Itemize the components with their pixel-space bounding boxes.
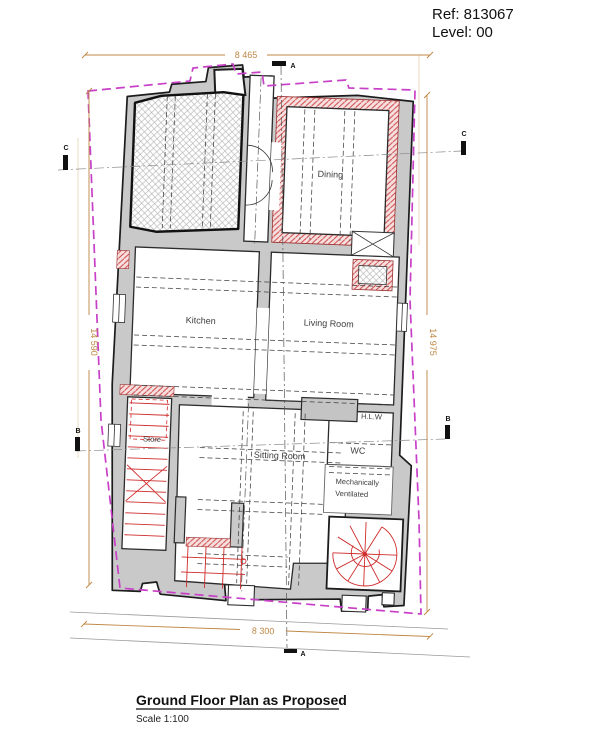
rooflight bbox=[351, 231, 394, 257]
wall-stub-left bbox=[174, 497, 186, 543]
svg-text:B: B bbox=[445, 416, 450, 423]
label-living-room: Living Room bbox=[303, 317, 353, 329]
new-wall-above-store bbox=[120, 384, 174, 396]
dimension-bottom-text: 8 300 bbox=[252, 626, 275, 637]
dimension-left: 14 590 bbox=[86, 88, 99, 588]
section-marker-a-bottom: A bbox=[284, 649, 306, 658]
label-sitting-room: Sitting Room bbox=[254, 450, 306, 462]
label-kitchen: Kitchen bbox=[186, 315, 216, 326]
label-mech-vent-2: Ventilated bbox=[335, 489, 368, 499]
sheet-header: Ref: 813067 Level: 00 bbox=[432, 6, 514, 41]
svg-text:C: C bbox=[63, 145, 68, 152]
svg-text:B: B bbox=[75, 428, 80, 435]
hlw-box bbox=[301, 397, 358, 421]
label-hlw: H.L.W bbox=[361, 412, 383, 422]
dimension-bottom: 8 300 bbox=[81, 621, 433, 640]
title-block: Ground Floor Plan as Proposed Scale 1:10… bbox=[136, 692, 347, 725]
label-mech-vent-1: Mechanically bbox=[335, 477, 379, 488]
section-marker-b-right: B bbox=[445, 416, 451, 439]
dimension-right-text: 14 975 bbox=[428, 328, 438, 356]
level-number: Level: 00 bbox=[432, 24, 493, 41]
building-plan: Dining Kitchen Living Room Store Sitting… bbox=[102, 60, 427, 613]
drawing-title: Ground Floor Plan as Proposed bbox=[136, 692, 347, 708]
rear-porch bbox=[228, 585, 255, 606]
section-marker-c-left: C bbox=[63, 145, 69, 170]
svg-text:A: A bbox=[290, 63, 295, 70]
new-wall-left bbox=[117, 250, 130, 268]
label-dining: Dining bbox=[317, 169, 343, 180]
room-sitting-area bbox=[173, 405, 350, 591]
label-store: Store bbox=[143, 434, 161, 444]
dimension-top-text: 8 465 bbox=[235, 50, 258, 60]
section-marker-c-right: C bbox=[461, 131, 467, 155]
room-store-area bbox=[122, 397, 172, 551]
drawing-sheet: Ref: 813067 Level: 00 bbox=[0, 0, 602, 735]
rear-step bbox=[382, 593, 394, 605]
floor-plan-canvas: Ref: 813067 Level: 00 bbox=[0, 0, 602, 735]
svg-text:C: C bbox=[461, 131, 466, 138]
dimension-left-text: 14 590 bbox=[89, 328, 99, 356]
wall-stub-right bbox=[230, 503, 244, 547]
dimension-top: 8 465 bbox=[82, 50, 433, 60]
ref-number: Ref: 813067 bbox=[432, 6, 514, 23]
drawing-scale: Scale 1:100 bbox=[136, 714, 189, 725]
label-wc: WC bbox=[350, 445, 366, 456]
dimension-right: 14 975 bbox=[424, 92, 438, 615]
svg-text:A: A bbox=[300, 651, 305, 658]
section-marker-a-top: A bbox=[272, 61, 296, 70]
section-marker-b-left: B bbox=[75, 428, 81, 451]
new-wall-sitting bbox=[186, 537, 230, 548]
